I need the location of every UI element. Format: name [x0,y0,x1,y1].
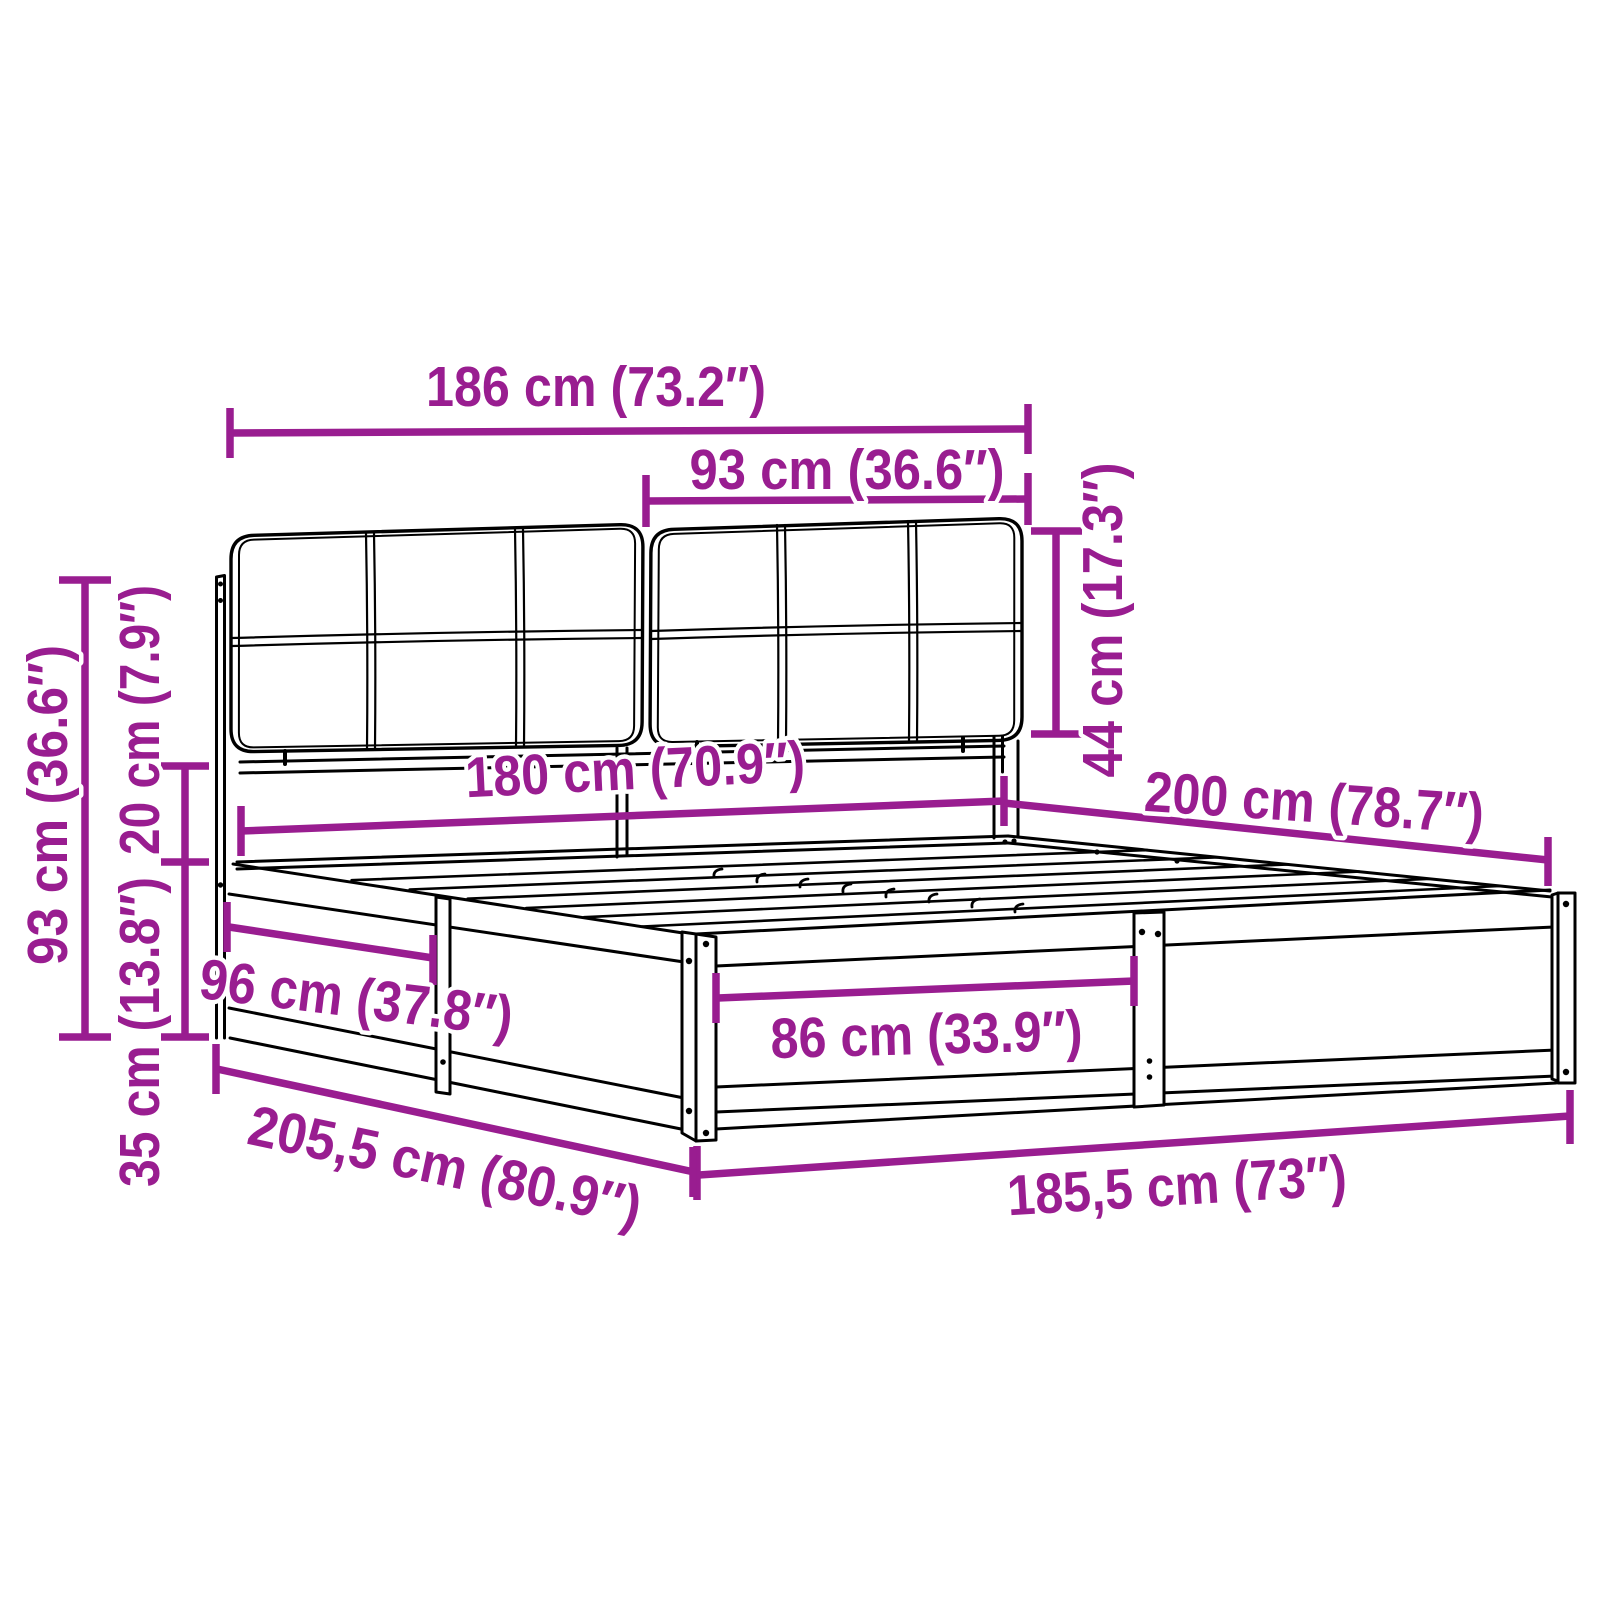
svg-text:35 cm (13.8″): 35 cm (13.8″) [108,877,172,1187]
svg-text:20 cm (7.9″): 20 cm (7.9″) [108,585,172,855]
svg-text:44 cm (17.3″): 44 cm (17.3″) [1071,463,1135,778]
svg-text:93 cm (36.6″): 93 cm (36.6″) [16,645,80,965]
svg-text:93 cm (36.6″): 93 cm (36.6″) [690,438,1005,502]
svg-text:86 cm (33.9″): 86 cm (33.9″) [770,999,1084,1071]
svg-text:186 cm (73.2″): 186 cm (73.2″) [426,355,766,419]
